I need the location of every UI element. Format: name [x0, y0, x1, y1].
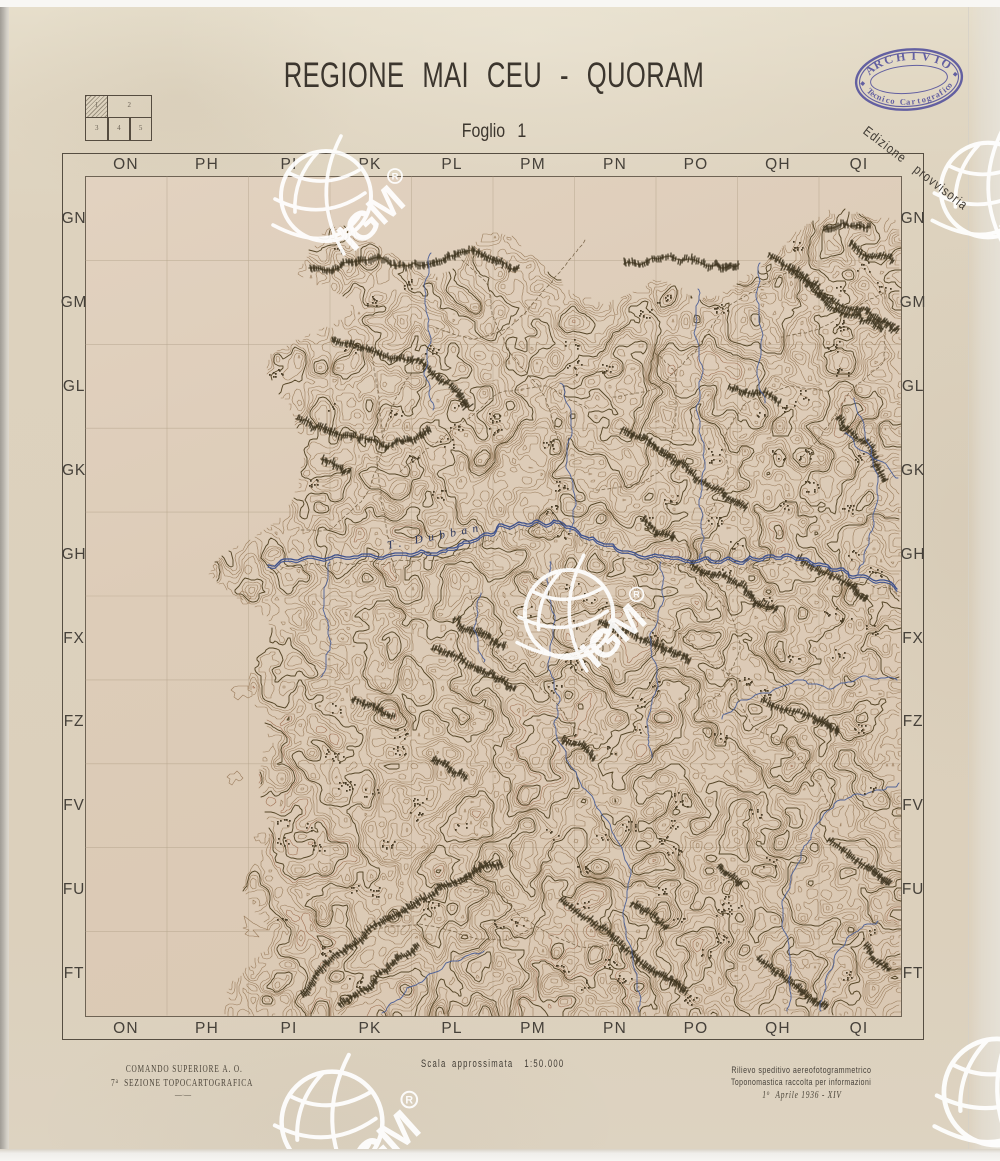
svg-text:I: I: [911, 49, 916, 63]
svg-text:V: V: [921, 49, 932, 64]
svg-text:C: C: [882, 52, 894, 68]
svg-text:H: H: [895, 49, 907, 64]
svg-text:o: o: [890, 95, 896, 106]
svg-text:r: r: [911, 96, 916, 106]
